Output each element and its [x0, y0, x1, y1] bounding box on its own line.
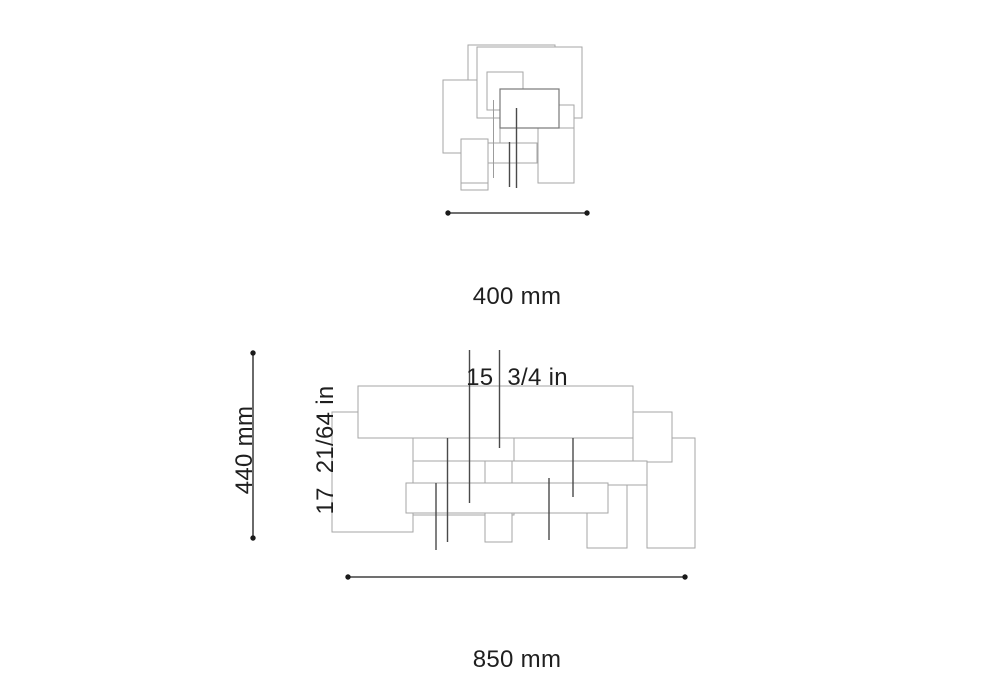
front-view-width-label: 850 mm 33 15/32 in [397, 592, 637, 700]
fixture-outline-rect [538, 128, 574, 183]
front-view-height-mm: 440 mm [231, 375, 258, 525]
front-view-height-label: 440 mm 17 21/64 in [177, 375, 231, 525]
front-view-width-mm: 850 mm [397, 646, 637, 673]
top-view-width-inches: 15 3/4 in [417, 364, 617, 391]
dimension-endpoint [682, 574, 687, 579]
dimension-endpoint [345, 574, 350, 579]
dimension-endpoint [250, 350, 255, 355]
dimension-endpoint [584, 210, 589, 215]
fixture-outline-rect [633, 412, 672, 462]
dimension-endpoint [250, 535, 255, 540]
top-view-width-label: 400 mm 15 3/4 in [417, 229, 617, 445]
dimension-drawing-page: 400 mm 15 3/4 in 440 mm 17 21/64 in 850 … [0, 0, 1000, 700]
dimension-endpoint [445, 210, 450, 215]
top-view-drawing [443, 45, 590, 216]
fixture-outline-rect [500, 89, 559, 128]
top-view-width-mm: 400 mm [417, 283, 617, 310]
fixture-outline-rect [461, 139, 488, 190]
front-view-height-inches: 17 21/64 in [312, 375, 339, 525]
